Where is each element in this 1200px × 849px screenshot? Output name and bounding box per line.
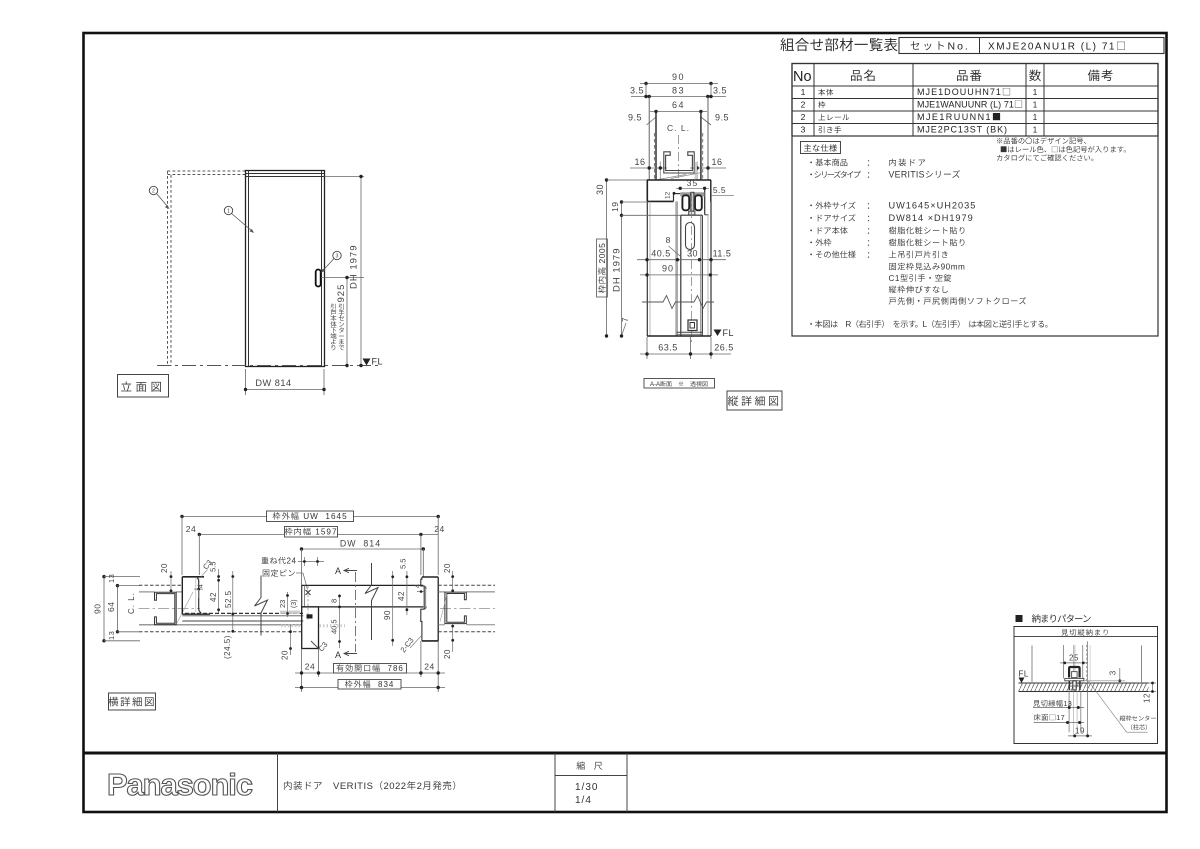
svg-text:樹脂化粧シート貼り: 樹脂化粧シート貼り	[889, 237, 967, 249]
svg-text:2: 2	[152, 189, 155, 195]
svg-text:XMJE20ANU1R (L) 71□: XMJE20ANU1R (L) 71□	[988, 38, 1126, 53]
svg-text:42: 42	[397, 591, 406, 601]
svg-text:上レール: 上レール	[818, 112, 850, 123]
svg-text:DW814 ×DH1979: DW814 ×DH1979	[889, 210, 974, 224]
svg-text:No: No	[793, 69, 812, 85]
svg-text:有効開口幅 786: 有効開口幅 786	[336, 663, 404, 674]
svg-text:：: ：	[867, 212, 875, 224]
svg-text:3.5: 3.5	[713, 86, 727, 96]
svg-text:12: 12	[664, 191, 671, 199]
svg-text:35: 35	[687, 178, 698, 188]
svg-text:MJE1RUUNN1■: MJE1RUUNN1■	[917, 110, 1001, 123]
svg-text:24: 24	[186, 524, 196, 534]
svg-text:3: 3	[1109, 670, 1118, 675]
svg-text:り: り	[330, 343, 336, 352]
svg-text:(3): (3)	[291, 599, 298, 608]
svg-text:30: 30	[687, 249, 698, 259]
svg-text:20: 20	[443, 649, 452, 659]
svg-text:・外枠サイズ: ・外枠サイズ	[807, 200, 856, 212]
svg-text:：: ：	[867, 157, 875, 169]
svg-text:DH 1979: DH 1979	[612, 248, 623, 293]
svg-text:樹脂化粧シート貼り: 樹脂化粧シート貼り	[889, 225, 967, 237]
svg-text:9.5: 9.5	[628, 113, 642, 123]
svg-text:DH 1979: DH 1979	[349, 245, 360, 290]
svg-text:30: 30	[595, 184, 605, 195]
svg-text:：: ：	[867, 249, 875, 261]
svg-text:13: 13	[107, 574, 116, 583]
svg-text:9.5: 9.5	[715, 113, 729, 123]
svg-text:83: 83	[672, 86, 685, 96]
svg-text:上吊引戸片引き: 上吊引戸片引き	[889, 249, 950, 261]
svg-text:品名: 品名	[850, 65, 877, 84]
svg-text:セットNo.: セットNo.	[910, 39, 970, 54]
svg-text:1: 1	[1033, 88, 1038, 97]
svg-text:枠内幅 1597: 枠内幅 1597	[284, 526, 337, 538]
svg-text:横詳細図: 横詳細図	[108, 695, 156, 710]
svg-text:8: 8	[666, 235, 671, 245]
svg-text:A: A	[335, 650, 341, 660]
svg-text:本体: 本体	[818, 87, 834, 98]
svg-text:・シリーズタイプ: ・シリーズタイプ	[807, 169, 862, 181]
svg-text:90: 90	[662, 264, 674, 274]
svg-text:16: 16	[634, 157, 645, 167]
svg-text:C1型引手・空錠: C1型引手・空錠	[889, 272, 953, 284]
svg-text:枠外幅 UW 1645: 枠外幅 UW 1645	[272, 510, 347, 522]
svg-text:カタログにてご確認ください。: カタログにてご確認ください。	[996, 154, 1098, 164]
svg-text:Panasonic: Panasonic	[107, 767, 253, 802]
svg-text:・外枠: ・外枠	[807, 237, 832, 249]
svg-text:：: ：	[867, 225, 875, 237]
svg-text:1: 1	[1033, 113, 1038, 122]
svg-text:縮 尺: 縮 尺	[576, 759, 606, 772]
svg-text:MJE1WANUUNR (L) 71□: MJE1WANUUNR (L) 71□	[917, 98, 1023, 111]
svg-text:備考: 備考	[1087, 65, 1114, 84]
svg-text:固定枠見込み90mm: 固定枠見込み90mm	[889, 261, 966, 273]
svg-text:12: 12	[1143, 693, 1152, 703]
svg-text:組合せ部材一覧表: 組合せ部材一覧表	[780, 34, 898, 55]
svg-text:戸先側・戸尻側両側ソフトクローズ: 戸先側・戸尻側両側ソフトクローズ	[889, 295, 1028, 307]
svg-text:FL: FL	[1019, 670, 1029, 679]
svg-text:内装ドア VERITIS（2022年2月発売）: 内装ドア VERITIS（2022年2月発売）	[283, 778, 462, 792]
svg-text:C. L.: C. L.	[667, 123, 690, 133]
svg-text:24: 24	[305, 662, 315, 672]
svg-text:3.5: 3.5	[630, 86, 644, 96]
svg-text:MJE1DOUUHN71□: MJE1DOUUHN71□	[917, 85, 1011, 98]
svg-text:FL: FL	[723, 328, 735, 338]
svg-text:1/30: 1/30	[575, 782, 598, 793]
svg-text:64: 64	[672, 100, 685, 110]
svg-text:1: 1	[227, 209, 230, 215]
svg-text:40.5: 40.5	[330, 619, 339, 634]
svg-text:枠外幅 834: 枠外幅 834	[345, 679, 395, 690]
svg-text:縦枠センター: 縦枠センター	[1119, 714, 1156, 723]
svg-text:C. L.: C. L.	[127, 592, 136, 614]
svg-text:(24.5): (24.5)	[223, 635, 232, 659]
svg-text:数: 数	[1029, 65, 1042, 84]
svg-text:引き手: 引き手	[818, 125, 842, 136]
svg-text:90: 90	[383, 610, 392, 620]
svg-text:23: 23	[278, 600, 287, 608]
svg-text:1: 1	[801, 87, 806, 97]
svg-text:26.5: 26.5	[714, 343, 734, 353]
svg-text:40.5: 40.5	[651, 249, 671, 259]
svg-text:5.5: 5.5	[209, 562, 218, 572]
svg-text:20: 20	[160, 563, 169, 573]
svg-text:925: 925	[336, 284, 347, 303]
svg-text:：: ：	[867, 169, 875, 181]
svg-text:重ね代24: 重ね代24	[261, 556, 296, 567]
svg-text:1: 1	[1033, 101, 1038, 110]
svg-text:縦詳細図: 縦詳細図	[728, 393, 782, 409]
svg-text:見切縦納まり: 見切縦納まり	[1061, 628, 1110, 638]
svg-text:床面□17: 床面□17	[1034, 713, 1066, 723]
svg-text:2: 2	[801, 100, 806, 110]
svg-text:8: 8	[330, 599, 339, 603]
svg-text:：: ：	[867, 200, 875, 212]
svg-text:FL: FL	[372, 357, 384, 367]
svg-text:52.5: 52.5	[224, 590, 233, 608]
svg-text:3: 3	[801, 125, 806, 135]
svg-text:19: 19	[610, 202, 620, 212]
svg-text:・本図は R（右引手） を示す。L（左引手） は本図と逆引手: ・本図は R（右引手） を示す。L（左引手） は本図と逆引手とする。	[807, 318, 1053, 330]
svg-text:1: 1	[1033, 126, 1038, 135]
svg-text:90: 90	[672, 72, 685, 82]
svg-text:42: 42	[209, 592, 218, 602]
svg-text:主な仕様: 主な仕様	[804, 142, 838, 154]
svg-text:3: 3	[336, 254, 339, 260]
svg-text:5.5: 5.5	[399, 559, 408, 569]
svg-text:19: 19	[1075, 727, 1085, 736]
svg-text:（柱芯）: （柱芯）	[1127, 723, 1152, 732]
svg-text:2: 2	[801, 112, 806, 122]
svg-text:納まりパターン: 納まりパターン	[1032, 611, 1092, 625]
svg-text:4: 4	[415, 584, 422, 588]
svg-text:枠: 枠	[818, 100, 826, 111]
svg-text:5.5: 5.5	[713, 185, 726, 195]
svg-text:品番: 品番	[956, 65, 983, 84]
svg-text:25: 25	[1069, 653, 1079, 662]
svg-text:63.5: 63.5	[658, 343, 678, 353]
svg-text:16: 16	[711, 157, 722, 167]
svg-text:1/4: 1/4	[575, 795, 592, 806]
svg-text:：: ：	[867, 237, 875, 249]
svg-text:20: 20	[281, 650, 290, 660]
svg-text:24: 24	[434, 524, 444, 534]
svg-text:90: 90	[93, 604, 103, 614]
svg-text:縦枠伸びすなし: 縦枠伸びすなし	[889, 284, 950, 296]
svg-text:・その他仕様: ・その他仕様	[807, 249, 856, 261]
svg-text:20: 20	[443, 563, 452, 573]
svg-text:固定ピン: 固定ピン	[262, 568, 296, 579]
svg-text:・ドア本体: ・ドア本体	[807, 225, 848, 237]
svg-text:64: 64	[106, 602, 116, 612]
svg-text:・ドアサイズ: ・ドアサイズ	[807, 212, 856, 224]
svg-text:7: 7	[621, 317, 630, 322]
svg-text:・基本商品: ・基本商品	[807, 157, 848, 169]
svg-text:DW 814: DW 814	[340, 539, 381, 549]
svg-text:で: で	[338, 343, 344, 352]
svg-text:枠内高 2005: 枠内高 2005	[596, 243, 608, 294]
svg-text:A: A	[335, 566, 341, 576]
svg-text:4: 4	[198, 584, 205, 588]
svg-text:13: 13	[107, 631, 116, 640]
svg-text:VERITISシリーズ: VERITISシリーズ	[889, 168, 961, 181]
svg-text:立面図: 立面図	[121, 379, 166, 395]
svg-text:11.5: 11.5	[713, 249, 732, 259]
svg-text:MJE2PC13ST (BK): MJE2PC13ST (BK)	[917, 123, 1007, 136]
svg-text:DW 814: DW 814	[255, 378, 291, 388]
svg-text:A-A断面 ※ 透視図: A-A断面 ※ 透視図	[650, 379, 708, 388]
svg-text:24: 24	[424, 662, 434, 672]
